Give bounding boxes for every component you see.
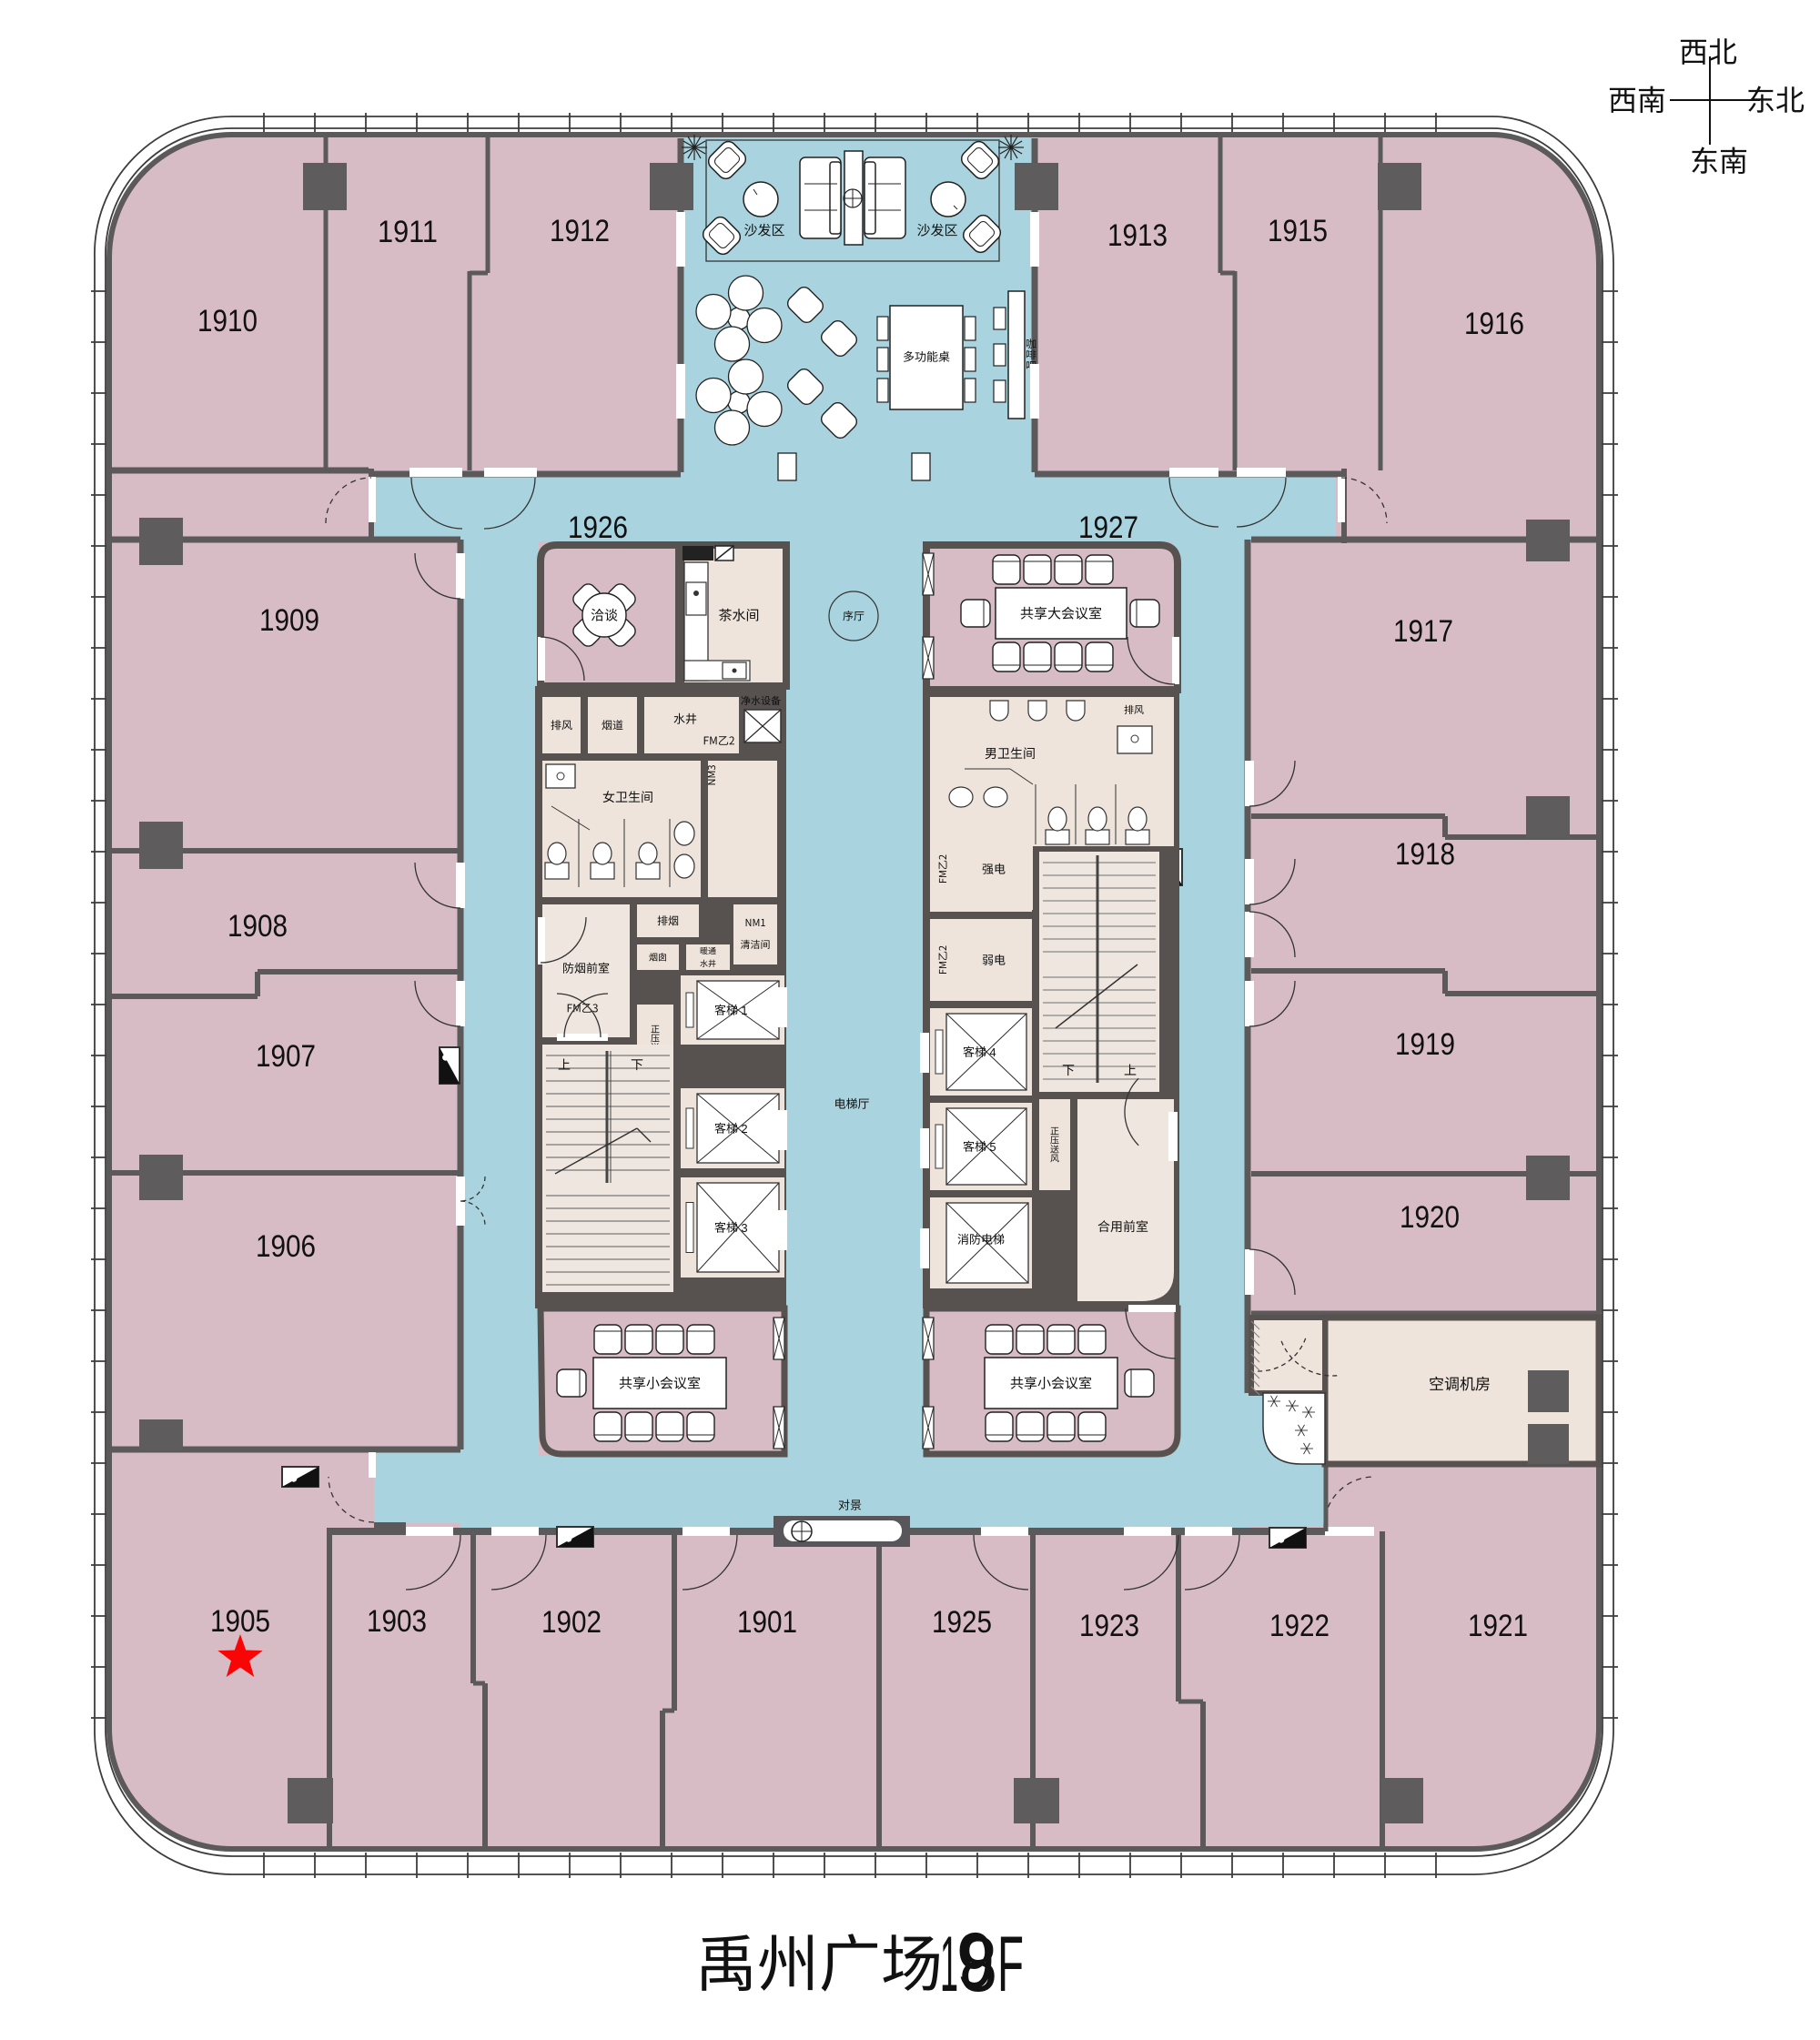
- svg-text:F: F: [997, 1921, 1024, 2008]
- svg-text:1927: 1927: [1078, 510, 1138, 545]
- svg-text:1920: 1920: [1400, 1200, 1460, 1235]
- svg-text:9: 9: [956, 1917, 995, 2005]
- svg-text:1901: 1901: [737, 1605, 797, 1640]
- svg-text:2: 2: [741, 1122, 747, 1136]
- svg-text:1908: 1908: [227, 909, 288, 944]
- svg-text:1915: 1915: [1268, 214, 1328, 248]
- svg-text:1909: 1909: [259, 603, 319, 638]
- svg-text:1922: 1922: [1269, 1609, 1330, 1643]
- svg-text:5: 5: [989, 1140, 996, 1154]
- svg-text:3: 3: [741, 1221, 747, 1235]
- svg-text:1906: 1906: [256, 1229, 316, 1264]
- svg-text:1911: 1911: [378, 215, 438, 249]
- svg-text:1916: 1916: [1464, 307, 1524, 341]
- svg-text:1902: 1902: [541, 1605, 602, 1640]
- svg-text:1903: 1903: [367, 1604, 427, 1639]
- svg-text:1910: 1910: [197, 304, 258, 338]
- svg-text:1917: 1917: [1393, 614, 1453, 649]
- svg-text:1905: 1905: [210, 1604, 270, 1639]
- svg-text:1: 1: [741, 1004, 747, 1017]
- svg-text:1923: 1923: [1079, 1609, 1139, 1643]
- svg-text:1907: 1907: [256, 1039, 316, 1074]
- svg-text:1925: 1925: [932, 1605, 992, 1640]
- svg-text:1918: 1918: [1395, 837, 1455, 872]
- svg-text:1921: 1921: [1468, 1609, 1528, 1643]
- svg-text:1926: 1926: [568, 510, 628, 545]
- svg-text:1912: 1912: [550, 214, 610, 248]
- svg-text:1913: 1913: [1107, 218, 1168, 253]
- svg-text:1: 1: [940, 1921, 958, 2008]
- svg-text:1919: 1919: [1395, 1027, 1455, 1062]
- svg-text:4: 4: [989, 1045, 996, 1059]
